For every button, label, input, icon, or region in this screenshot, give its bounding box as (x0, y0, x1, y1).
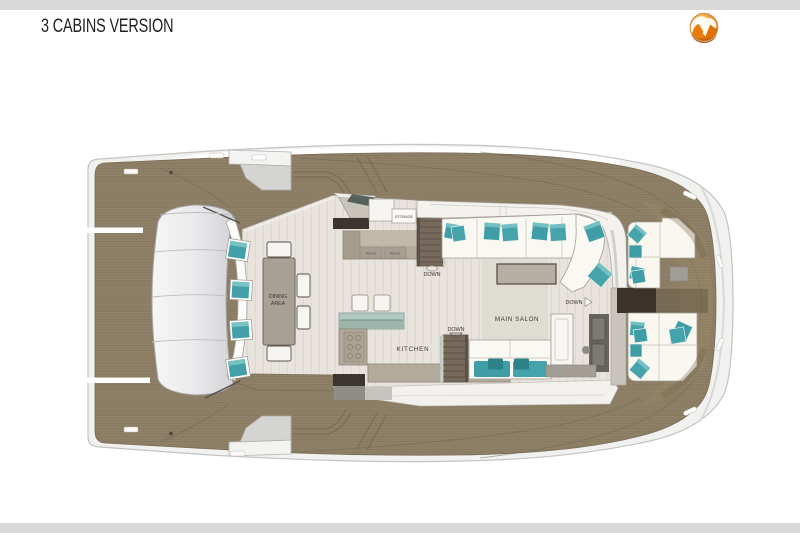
svg-text:STORAGE: STORAGE (395, 215, 413, 219)
svg-text:FRIDGE: FRIDGE (390, 252, 401, 256)
svg-text:DINING: DINING (269, 294, 287, 300)
svg-text:FRIDGE: FRIDGE (366, 252, 377, 256)
svg-text:KITCHEN: KITCHEN (397, 346, 430, 353)
svg-text:MAIN SALON: MAIN SALON (495, 316, 539, 323)
svg-text:DOWN: DOWN (423, 272, 440, 278)
svg-text:AREA: AREA (271, 301, 286, 307)
svg-text:DOWN: DOWN (565, 300, 582, 306)
svg-text:DOWN: DOWN (447, 327, 464, 333)
